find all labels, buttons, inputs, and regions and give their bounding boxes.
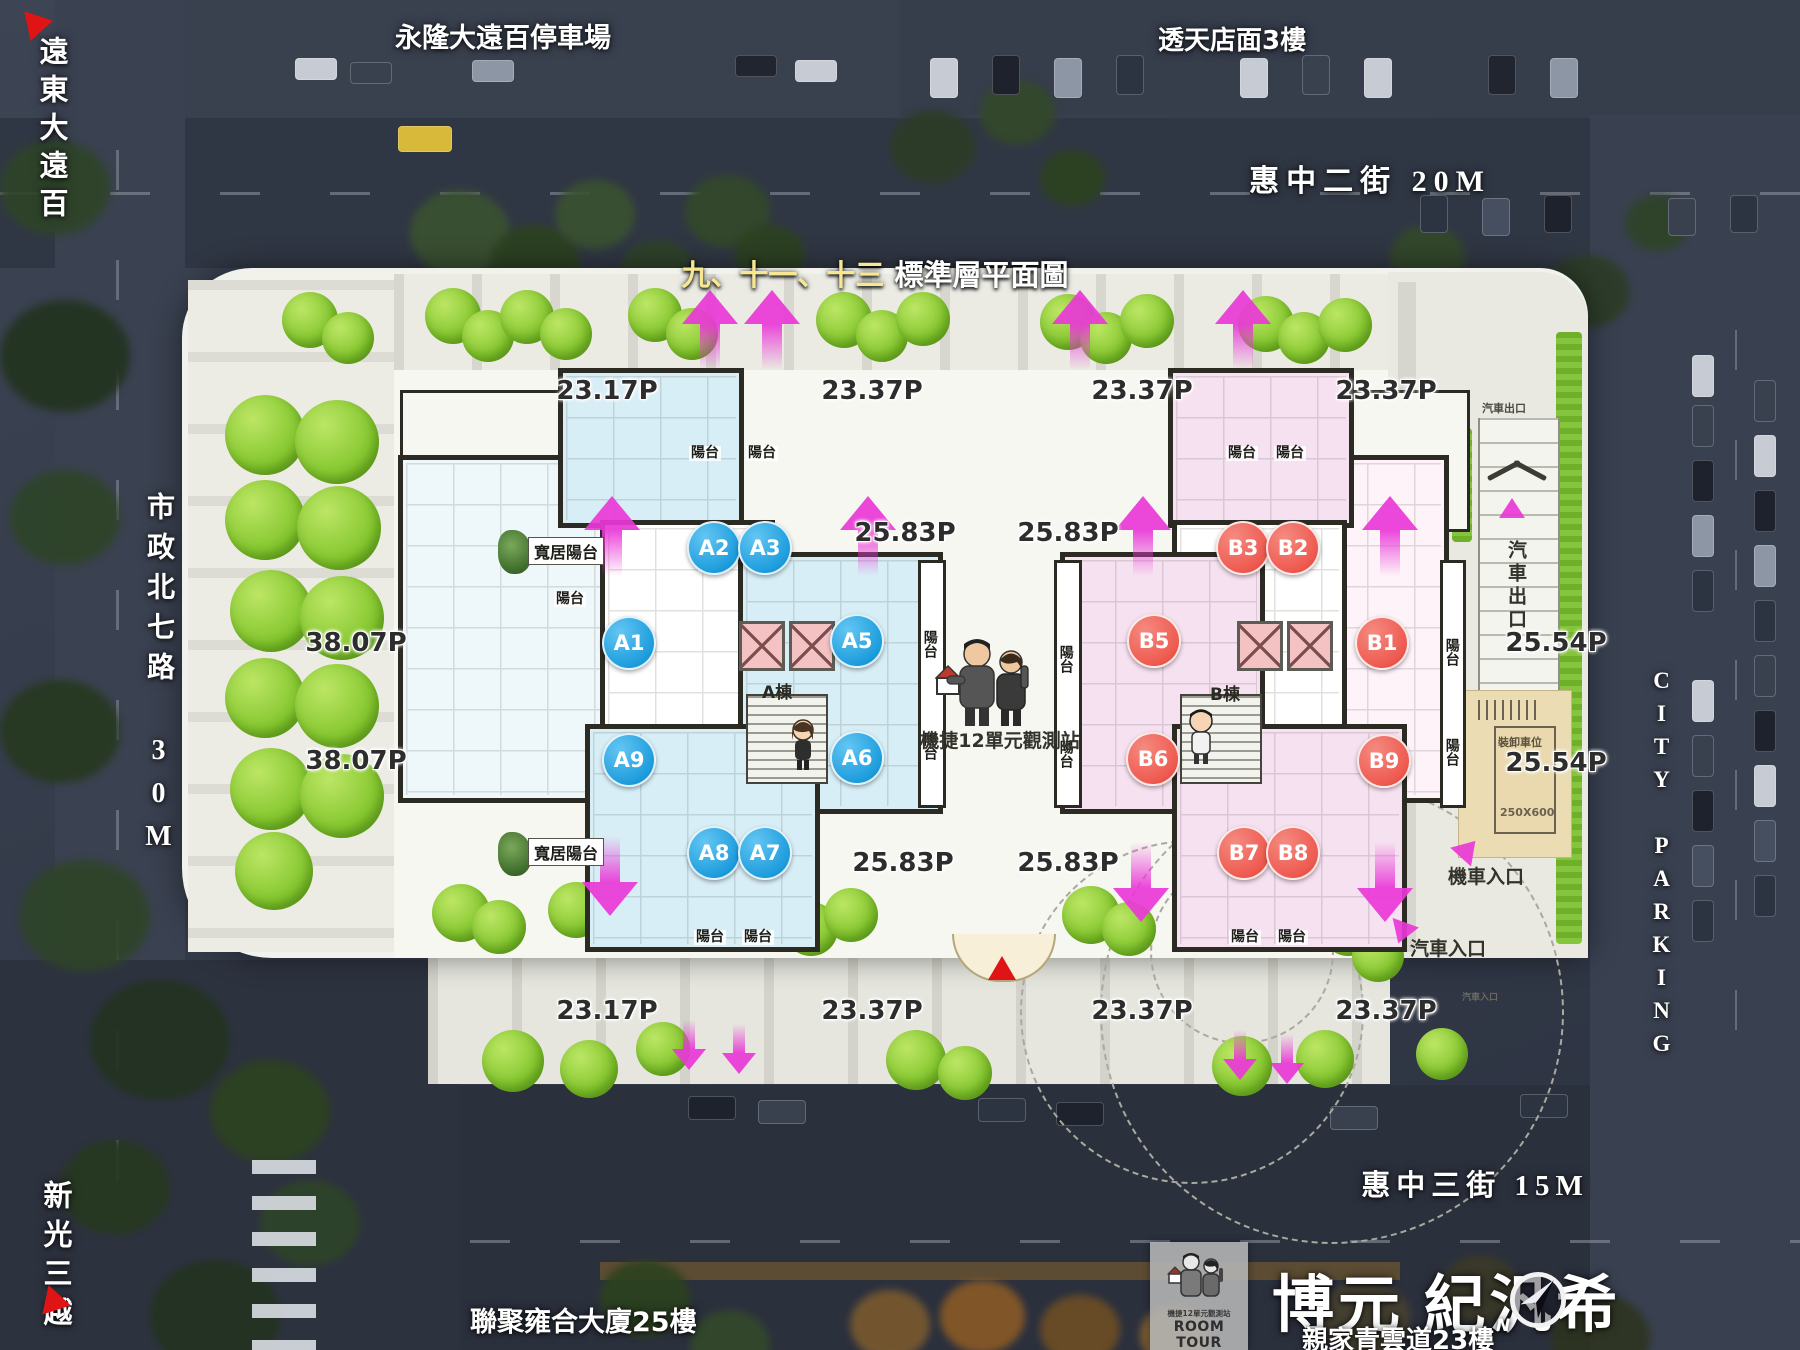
measurement: 23.37P (821, 376, 922, 406)
unit-badge-b6: B6 (1126, 732, 1180, 786)
balcony-label: 陽台 (1058, 643, 1073, 675)
balcony-label: 陽台 (694, 930, 726, 945)
unit-label: B3 (1228, 536, 1259, 560)
unit-label: A2 (699, 536, 730, 560)
balcony-label: 陽台 (689, 446, 721, 461)
up-arrow (1362, 496, 1418, 576)
main-entrance-marker (988, 956, 1016, 980)
unit-badge-b3: B3 (1216, 521, 1270, 575)
road-top-laneline (0, 192, 1800, 195)
balcony-label: 陽台 (746, 446, 778, 461)
balcony-label: 陽台 (1444, 736, 1459, 768)
unit-label: B6 (1138, 747, 1169, 771)
measurement: 23.37P (1091, 996, 1192, 1026)
unit-badge-a8: A8 (687, 826, 741, 880)
balcony-label: 陽台 (1444, 636, 1459, 668)
unit-label: B2 (1278, 536, 1309, 560)
building-b-top-wing (1168, 368, 1354, 528)
street-top-label: 惠中二街 20M (1249, 156, 1491, 200)
landmark-far-eastern: 遠東大遠百 (30, 36, 72, 226)
balcony-label: 陽台 (1229, 930, 1261, 945)
unit-label: A6 (842, 746, 873, 770)
unit-badge-b5: B5 (1127, 614, 1181, 668)
measurement: 23.37P (821, 996, 922, 1026)
unit-label: A9 (614, 748, 645, 772)
unit-label: A3 (750, 536, 781, 560)
unit-badge-a3: A3 (738, 521, 792, 575)
up-arrow (1052, 290, 1108, 370)
unit-label: A5 (842, 629, 873, 653)
unit-badge-a1: A1 (602, 616, 656, 670)
unit-label: B9 (1369, 749, 1400, 773)
landmark-parking-lot: 永隆大遠百停車場 (395, 16, 611, 55)
measurement: 25.83P (854, 518, 955, 548)
up-arrow (744, 290, 800, 370)
elevator-b-1 (1237, 621, 1283, 671)
plan-title-highlight: 九、十一、十三 (681, 258, 884, 292)
unit-badge-b7: B7 (1217, 826, 1271, 880)
down-arrow (672, 1020, 707, 1070)
loading-space-size: 250X600 (1500, 806, 1554, 819)
terrace-plant (498, 832, 532, 876)
unit-label: B1 (1367, 631, 1398, 655)
site-plan-screenshot: 裝卸車位 250X600 A1 A2 A3 A5 A6 A9 A8 A7 B3 … (0, 0, 1800, 1350)
unit-badge-b8: B8 (1266, 826, 1320, 880)
measurement: 23.37P (1335, 996, 1436, 1026)
balcony-label: 陽台 (1276, 930, 1308, 945)
street-left-label: 市政北七路 30M (138, 492, 178, 864)
balcony-label: 陽台 (1226, 446, 1258, 461)
unit-label: B5 (1139, 629, 1170, 653)
building-a-label: A棟 (762, 678, 792, 703)
measurement: 38.07P (305, 746, 406, 776)
car-exit-label: 汽車出口 (1503, 540, 1530, 632)
brand-subtitle: 親家青雲道23樓 (1302, 1320, 1494, 1350)
car-exit-top-label: 汽車出口 (1482, 400, 1526, 416)
wide-balcony-label: 寬居陽台 (528, 537, 604, 565)
moto-entrance-label: 機車入口 (1448, 862, 1524, 889)
red-arrow-top-left (13, 1, 53, 40)
crosswalk (252, 1160, 316, 1350)
street-bottom-label: 惠中三街 15M (1361, 1162, 1589, 1204)
car-entrance-label: 汽車入口 (1410, 934, 1486, 961)
plan-title: 九、十一、十三 標準層平面圖 (681, 252, 1068, 294)
balcony-label: 陽台 (742, 930, 774, 945)
measurement: 23.17P (556, 996, 657, 1026)
unit-badge-b9: B9 (1357, 734, 1411, 788)
down-arrow (1113, 842, 1169, 922)
city-parking-label: CITY PARKING (1648, 668, 1674, 1064)
measurement: 23.17P (556, 376, 657, 406)
down-arrow (1357, 842, 1413, 922)
observation-label: 機捷12單元觀測站 (920, 726, 1079, 753)
building-b-label: B棟 (1210, 680, 1240, 705)
down-arrow (722, 1024, 757, 1074)
landmark-lianju: 聯聚雍合大廈25樓 (470, 1300, 697, 1339)
unit-badge-b2: B2 (1266, 521, 1320, 575)
down-arrow (1270, 1034, 1305, 1084)
unit-label: A7 (750, 841, 781, 865)
mascot-man (1184, 708, 1218, 766)
balcony-label: 陽台 (554, 592, 586, 607)
measurement: 25.54P (1505, 628, 1606, 658)
measurement: 38.07P (305, 628, 406, 658)
room-tour-label: ROOM TOUR (1150, 1319, 1248, 1350)
measurement: 23.37P (1335, 376, 1436, 406)
mascot-girl (788, 718, 818, 772)
car-entrance-small-label: 汽車入口 (1462, 990, 1498, 1003)
unit-label: A8 (699, 841, 730, 865)
magenta-triangle (1499, 498, 1525, 518)
loading-stairs (1478, 700, 1540, 720)
elevator-b-2 (1287, 621, 1333, 671)
up-arrow (1115, 496, 1171, 576)
elevator-a-2 (789, 621, 835, 671)
measurement: 25.83P (1017, 518, 1118, 548)
unit-label: B7 (1229, 841, 1260, 865)
unit-badge-a6: A6 (830, 731, 884, 785)
road-bottom-laneline (470, 1240, 1800, 1243)
plan-title-rest: 標準層平面圖 (895, 258, 1069, 292)
landmark-shophouse: 透天店面3樓 (1158, 20, 1306, 57)
measurement: 25.54P (1505, 748, 1606, 778)
measurement: 25.83P (852, 848, 953, 878)
unit-badge-a7: A7 (738, 826, 792, 880)
building-b-balcony-strip-left (1054, 560, 1082, 808)
mascot-couple (935, 632, 1035, 732)
up-arrow (682, 290, 738, 370)
unit-badge-a5: A5 (830, 614, 884, 668)
compass-n-label: N (1496, 1316, 1510, 1336)
unit-badge-a9: A9 (602, 733, 656, 787)
unit-badge-a2: A2 (687, 521, 741, 575)
terrace-plant (498, 530, 532, 574)
measurement: 25.83P (1017, 848, 1118, 878)
down-arrow (1223, 1030, 1258, 1080)
wide-balcony-label: 寬居陽台 (528, 838, 604, 866)
unit-badge-b1: B1 (1355, 616, 1409, 670)
room-tour-small-label: 機捷12單元觀測站 (1150, 1308, 1248, 1319)
right-lot-line (1735, 330, 1737, 1030)
up-arrow (1215, 290, 1271, 370)
measurement: 23.37P (1091, 376, 1192, 406)
building-b-balcony-strip-right (1440, 560, 1466, 808)
elevator-a-1 (739, 621, 785, 671)
unit-label: A1 (614, 631, 645, 655)
balcony-label: 陽台 (922, 628, 937, 660)
room-tour-logo: 機捷12單元觀測站 ROOM TOUR (1150, 1242, 1248, 1350)
unit-label: B8 (1278, 841, 1309, 865)
balcony-label: 陽台 (1274, 446, 1306, 461)
